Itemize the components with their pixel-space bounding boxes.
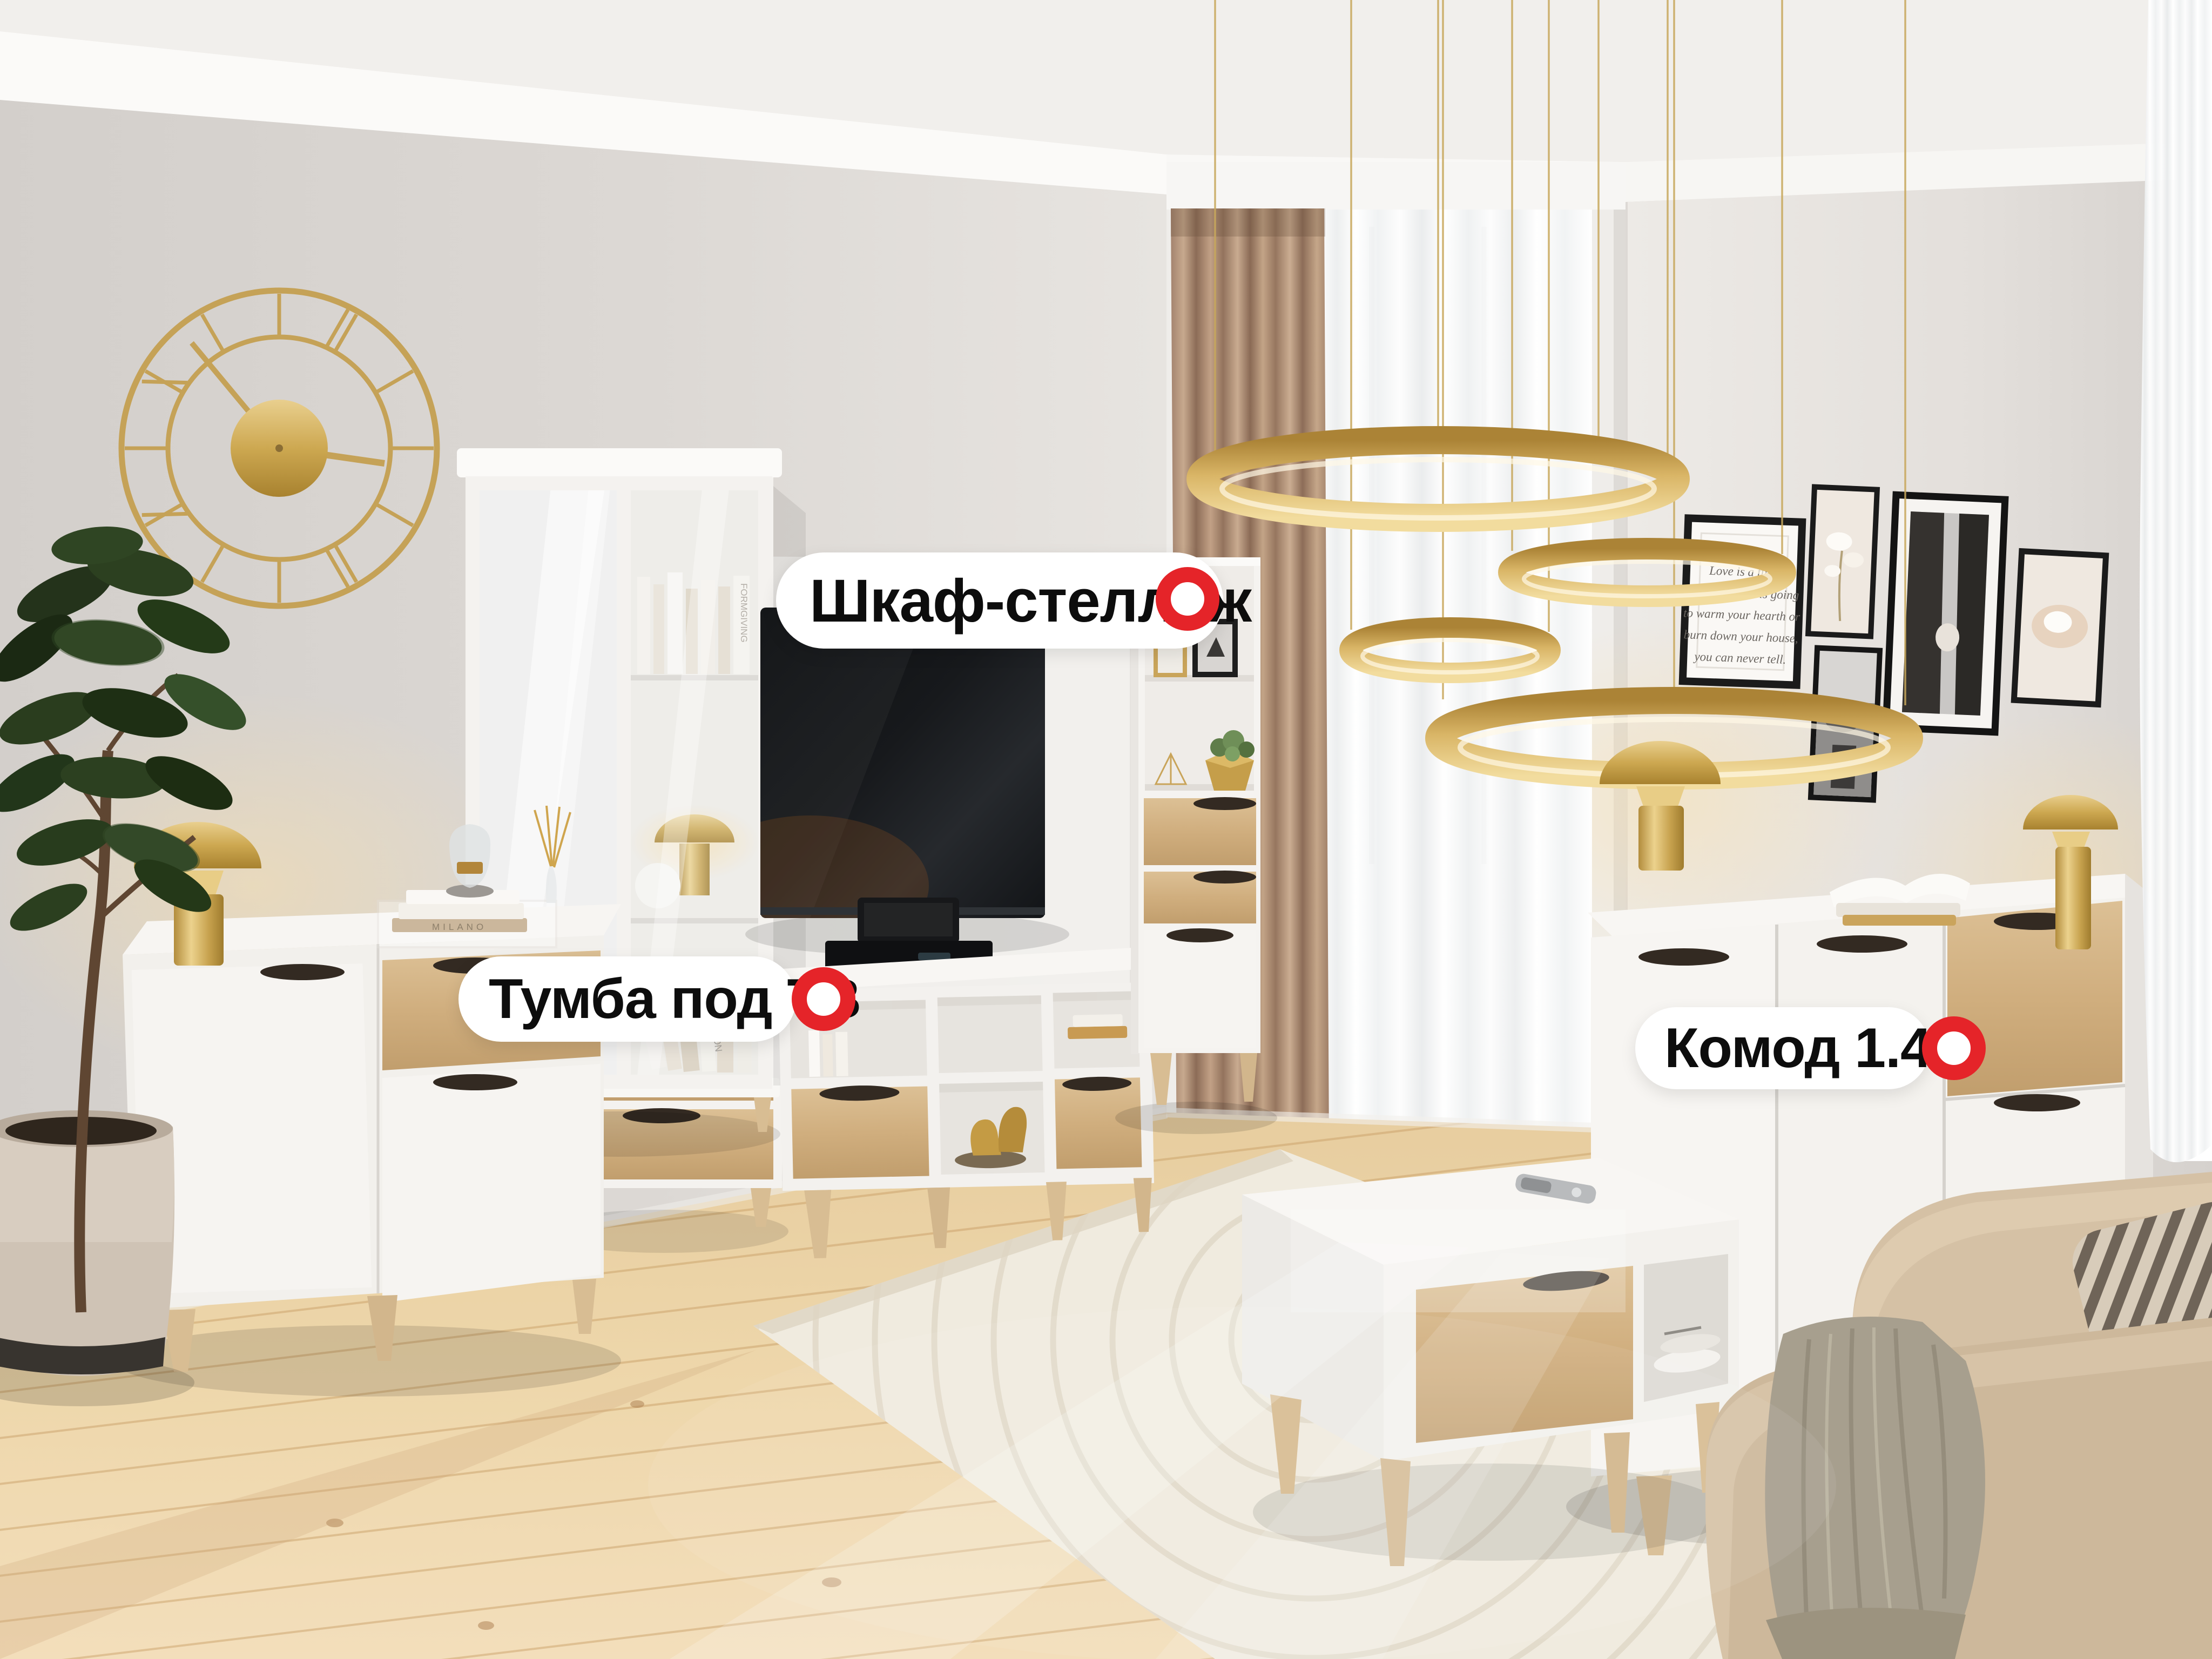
flower-frame	[2011, 548, 2109, 707]
hotspot-shkaf-stellazh[interactable]: Шкаф-стеллаж	[776, 552, 1223, 649]
orchid-frame	[1805, 484, 1880, 639]
hotspot-marker-icon[interactable]	[792, 967, 855, 1031]
wall-clock	[122, 291, 437, 606]
hotspot-marker-icon[interactable]	[1156, 567, 1219, 631]
hotspot-marker-icon[interactable]	[1922, 1016, 1986, 1080]
planter	[0, 1110, 174, 1376]
hotspot-label: Комод 1.47	[1635, 1016, 1962, 1081]
couple-frame	[1882, 491, 2008, 736]
hotspot-tumba-pod-tv[interactable]: Тумба под ТВ	[458, 956, 796, 1042]
right-sheer-drape	[2140, 0, 2212, 1162]
hotspot-komod-147[interactable]: Комод 1.47	[1635, 1007, 1930, 1089]
room-photo: Love is a fire. But whether it is going …	[0, 0, 2212, 1659]
svg-text:MILANO: MILANO	[432, 922, 487, 932]
